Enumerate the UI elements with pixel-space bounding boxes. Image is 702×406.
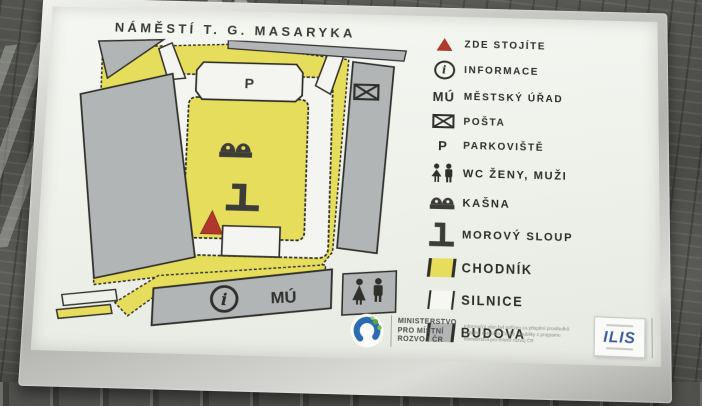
information-icon: i	[434, 60, 455, 79]
photo-of-map-sign: NÁMĚSTÍ T. G. MASARYKA P	[0, 0, 702, 406]
legend-item-sidewalk: CHODNÍK	[421, 258, 648, 283]
legend-label: MĚSTSKÝ ÚŘAD	[464, 92, 564, 106]
legend-item-information: i INFORMACE	[424, 60, 646, 85]
ilis-wordmark: ILIS	[603, 328, 636, 347]
legend-label: SILNICE	[461, 293, 523, 309]
map-square-notch	[222, 226, 281, 257]
map-town-hall-label: MÚ	[270, 287, 297, 308]
ministry-name-line: ROZVOJ ČR	[397, 336, 456, 347]
sidewalk-swatch	[426, 258, 456, 277]
fountain-icon	[429, 193, 456, 211]
legend-item-fountain: KAŠNA	[422, 193, 648, 216]
divider-line	[390, 315, 392, 347]
ministry-logo	[349, 312, 385, 349]
road-swatch	[427, 290, 455, 309]
ilis-fine-print-line	[606, 324, 633, 327]
plague-column-icon	[428, 222, 455, 247]
legend-label: PARKOVIŠTĚ	[463, 141, 544, 154]
map-sign-board: NÁMĚSTÍ T. G. MASARYKA P	[18, 0, 672, 403]
map-parking-label: P	[244, 76, 254, 91]
ilis-fine-print-line	[606, 347, 633, 350]
you-are-here-triangle-icon	[437, 38, 453, 51]
wc-figures-icon	[429, 163, 456, 183]
legend-label: INFORMACE	[464, 65, 539, 78]
legend-item-post-office: POŠTA	[423, 114, 646, 134]
parking-symbol: P	[423, 138, 464, 154]
mu-symbol: MÚ	[424, 89, 464, 105]
legend-label: POŠTA	[463, 116, 505, 128]
envelope-icon	[432, 114, 454, 129]
footer-logos: MINISTERSTVO PRO MÍSTNÍ ROZVOJ ČR Inform…	[349, 306, 653, 363]
legend-item-parking: P PARKOVIŠTĚ	[423, 138, 647, 159]
legend-label: WC ŽENY, MUŽI	[463, 167, 568, 182]
legend-item-wc: WC ŽENY, MUŽI	[422, 163, 647, 188]
legend-label: MOROVÝ SLOUP	[462, 229, 573, 244]
funding-note: Informační plán byl pořízen za přispění …	[464, 323, 586, 346]
sign-face: NÁMĚSTÍ T. G. MASARYKA P	[31, 6, 661, 366]
legend-item-town-hall: MÚ MĚSTSKÝ ÚŘAD	[424, 89, 647, 110]
legend-label: CHODNÍK	[462, 261, 533, 277]
divider-line	[651, 318, 652, 358]
legend-item-plague-column: MOROVÝ SLOUP	[421, 222, 648, 253]
legend-label: ZDE STOJÍTE	[464, 40, 546, 53]
map-info-label: i	[221, 290, 228, 310]
legend-item-you-are-here: ZDE STOJÍTE	[425, 38, 646, 56]
ministry-name: MINISTERSTVO PRO MÍSTNÍ ROZVOJ ČR	[397, 318, 457, 347]
legend-label: KAŠNA	[462, 197, 510, 210]
square-map: P	[48, 36, 423, 346]
ilis-logo: ILIS	[594, 316, 646, 358]
